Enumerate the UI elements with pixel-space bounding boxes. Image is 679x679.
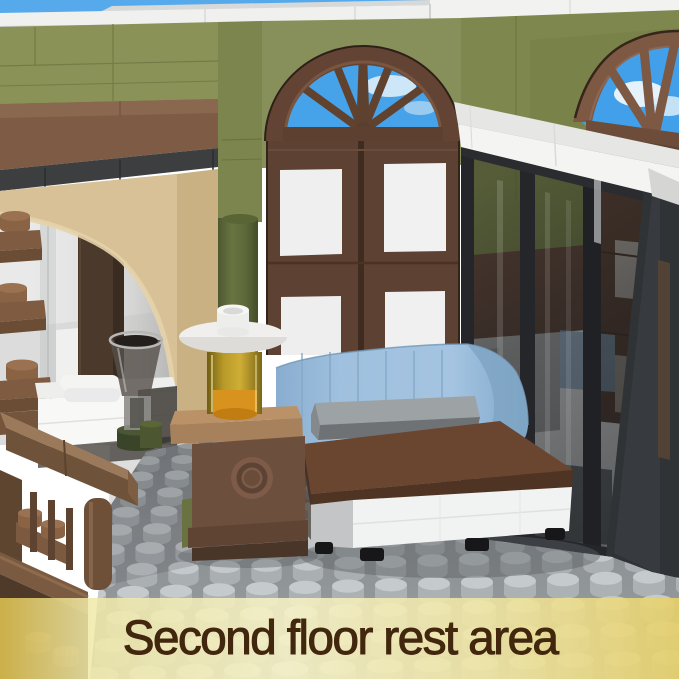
svg-text:Second floor rest area: Second floor rest area [123,612,560,665]
